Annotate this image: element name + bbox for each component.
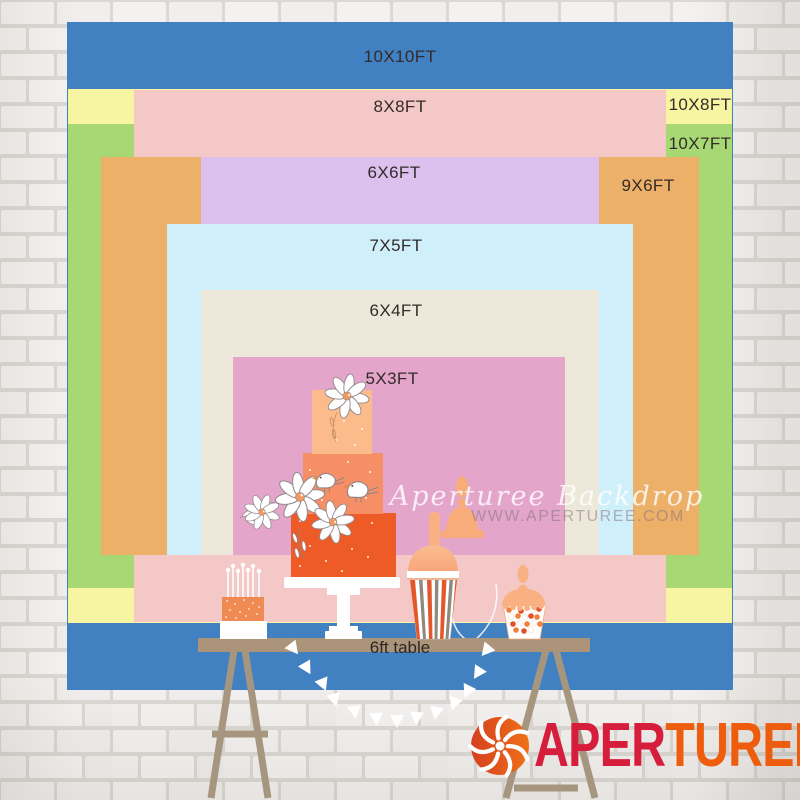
logo-text-part2: TUREE: [665, 715, 800, 777]
aperturee-logo: APER TUREE: [468, 714, 800, 778]
backdrop-size-chart: 10X10FT 8X8FT 10X8FT 10X7FT 6X6FT 9X6FT …: [0, 0, 800, 800]
table-size-label: 6ft table: [370, 638, 431, 658]
logo-wordmark: APER TUREE: [534, 715, 800, 777]
bunting-garland: [0, 0, 800, 800]
aperture-shutter-icon: [468, 714, 532, 778]
logo-text-part1: APER: [534, 715, 665, 777]
